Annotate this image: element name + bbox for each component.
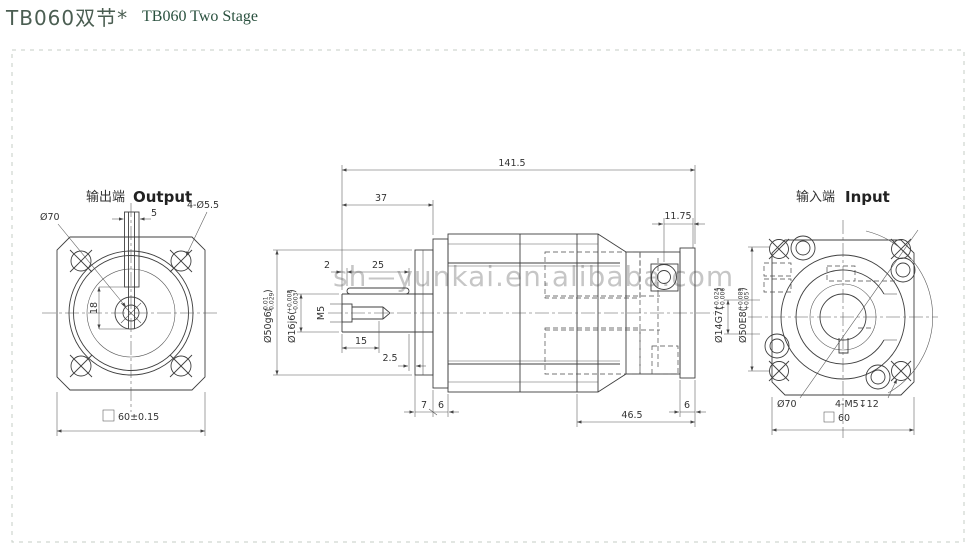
dim-key-offset: 2 bbox=[324, 260, 330, 271]
shaft-dia-main: Ø16j6( bbox=[287, 311, 298, 343]
input-bore-close: ) bbox=[714, 287, 725, 291]
output-heading-cn: 输出端 bbox=[86, 189, 125, 205]
dim-boss-width: 7 bbox=[421, 400, 427, 411]
shaft-dia-lower: -0.003 bbox=[293, 292, 300, 312]
dim-input-spigot-label: Ø50E8( +0.089 +0.05 ) bbox=[738, 287, 751, 343]
dim-output-square: 60±0.15 bbox=[118, 412, 159, 423]
dim-screw-offset: 11.75 bbox=[664, 211, 691, 222]
boss-dia-lower: -0.029 bbox=[269, 292, 276, 312]
dim-input-bore-label: Ø14G7( +0.024 +0.006 ) bbox=[714, 287, 727, 343]
dim-input-length: 46.5 bbox=[621, 410, 642, 421]
input-view-headings: 输入端 Input bbox=[796, 188, 890, 206]
dim-shaft-length: 37 bbox=[375, 193, 387, 204]
dim-flange-width: 6 bbox=[438, 400, 444, 411]
input-spigot-main: Ø50E8( bbox=[738, 308, 749, 343]
dim-output-corner-holes: 4-Ø5.5 bbox=[187, 200, 219, 211]
output-heading-en: Output bbox=[133, 188, 192, 206]
section-view-outline bbox=[328, 234, 714, 392]
dim-total-length: 141.5 bbox=[498, 158, 525, 169]
dim-end-width: 6 bbox=[684, 400, 690, 411]
dim-thread: M5 bbox=[316, 306, 327, 320]
drawing-page: TB060双节* TB060 Two Stage sh—yunkai.en.al… bbox=[0, 0, 972, 549]
dim-input-tapped-holes: 4-M5↧12 bbox=[835, 399, 879, 410]
input-spigot-lower: +0.05 bbox=[744, 291, 751, 310]
sheet-border bbox=[12, 50, 964, 542]
dim-key-end-gap: 2.5 bbox=[382, 353, 397, 364]
dim-input-square: 60 bbox=[838, 413, 850, 424]
input-spigot-close: ) bbox=[738, 287, 749, 291]
dim-thread-depth: 15 bbox=[355, 336, 367, 347]
shaft-dia-close: ) bbox=[287, 289, 298, 293]
technical-drawing: sh—yunkai.en.alibaba.com 输出端 Output bbox=[0, 0, 972, 549]
output-view-dimensions: 5 Ø70 4-Ø5.5 18 60±0.15 bbox=[40, 200, 219, 436]
dim-key-width: 5 bbox=[151, 208, 157, 219]
input-heading-cn: 输入端 bbox=[796, 189, 835, 205]
output-view-outline bbox=[42, 203, 220, 412]
dim-boss-dia-label: Ø50g6( -0.01 -0.029 ) bbox=[263, 289, 276, 343]
input-bore-main: Ø14G7( bbox=[714, 306, 725, 343]
output-view-headings: 输出端 Output bbox=[86, 188, 192, 206]
dim-key-length: 25 bbox=[372, 260, 384, 271]
dim-input-pilot: Ø70 bbox=[777, 399, 797, 410]
dim-key-depth: 18 bbox=[89, 302, 100, 314]
boss-dia-close: ) bbox=[263, 289, 274, 293]
input-heading-en: Input bbox=[845, 188, 890, 206]
dim-shaft-dia-label: Ø16j6( +0.008 -0.003 ) bbox=[287, 289, 300, 343]
dim-output-pilot: Ø70 bbox=[40, 212, 60, 223]
